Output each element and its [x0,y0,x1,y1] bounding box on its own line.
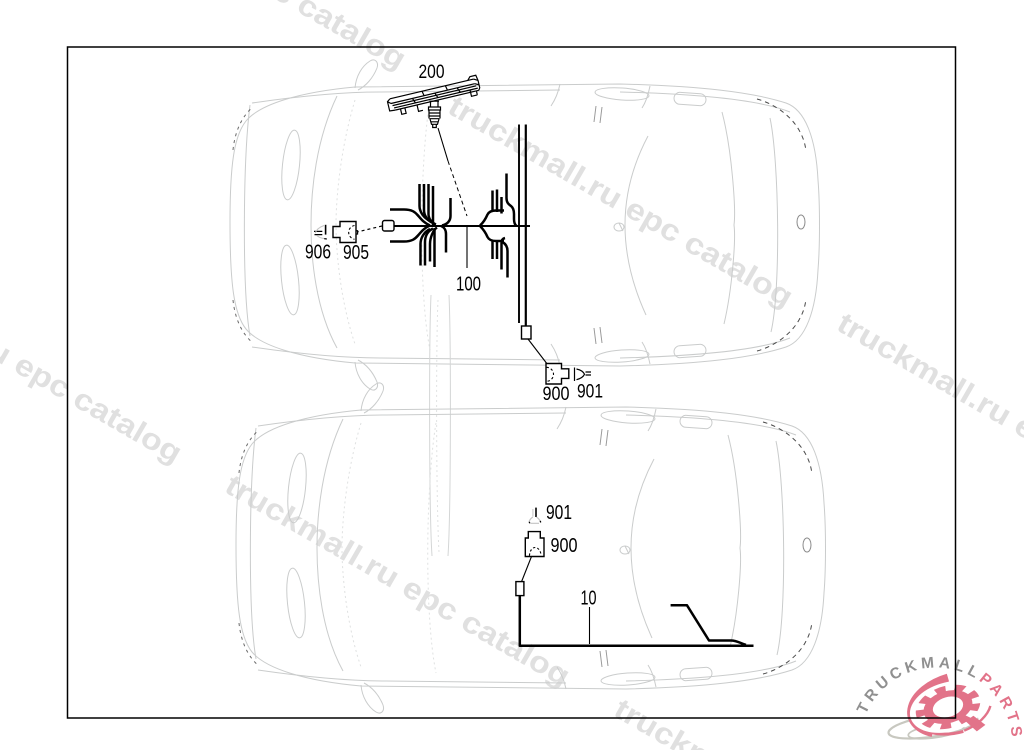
svg-text:10: 10 [581,588,597,610]
svg-text:truckmall.ru epc catalog: truckmall.ru epc catalog [0,245,187,470]
svg-text:200: 200 [419,62,445,83]
svg-text:100: 100 [456,274,481,296]
svg-text:906: 906 [305,242,331,264]
svg-text:truckmall.ru epc catalog: truckmall.ru epc catalog [832,306,1024,531]
svg-text:900: 900 [551,535,578,557]
svg-text:truckmall.ru epc catalog: truckmall.ru epc catalog [56,0,412,76]
svg-text:900: 900 [543,384,570,405]
svg-text:905: 905 [343,242,369,264]
svg-text:901: 901 [546,502,572,524]
svg-text:901: 901 [577,382,603,403]
